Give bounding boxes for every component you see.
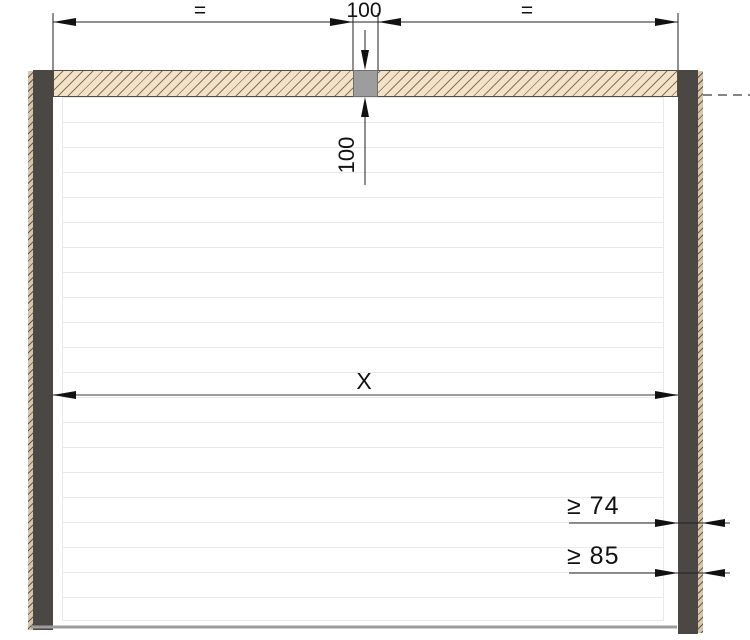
dim-label-clear-width: X — [356, 369, 371, 393]
dimension-lines-overlay — [0, 0, 750, 640]
min-74-dimension — [569, 519, 730, 527]
dim-label-top-width: 100 — [346, 0, 381, 22]
dim-label-equal-left: = — [194, 0, 206, 22]
dim-label-equal-right: = — [521, 0, 533, 22]
dim-label-min-74: ≥ 74 — [567, 493, 619, 519]
lintel-height-dimension — [361, 30, 369, 185]
min-85-dimension — [569, 569, 730, 577]
technical-drawing-canvas: = 100 = 100 X ≥ 74 ≥ 85 — [0, 0, 750, 640]
dim-label-min-85: ≥ 85 — [567, 543, 619, 569]
